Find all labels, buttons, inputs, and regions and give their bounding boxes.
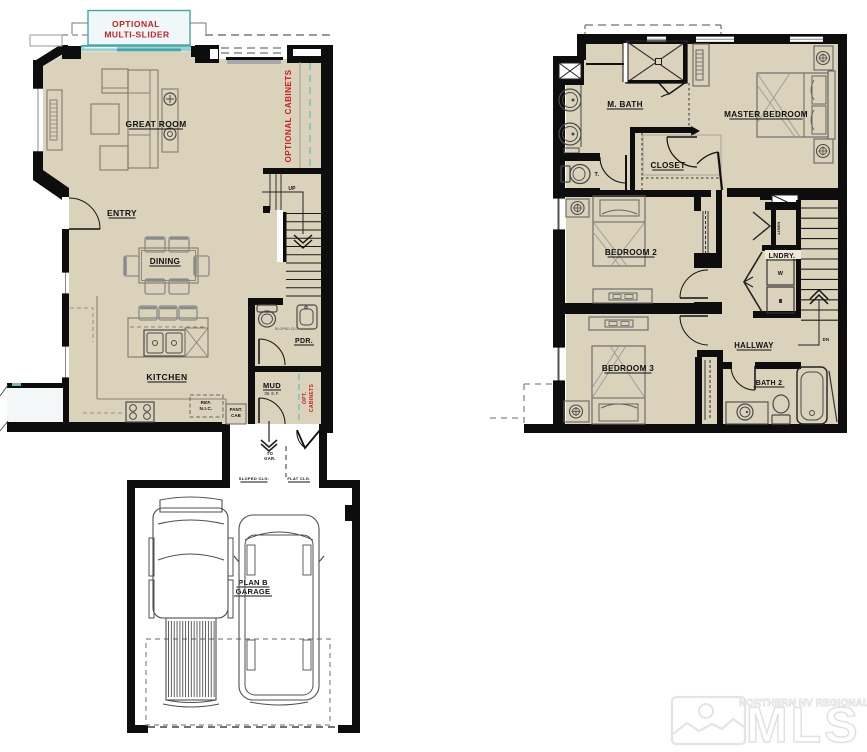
svg-text:ENTRY: ENTRY bbox=[107, 208, 137, 218]
svg-text:T.: T. bbox=[595, 172, 600, 178]
svg-text:CAB: CAB bbox=[231, 413, 241, 418]
svg-text:CABINETS: CABINETS bbox=[309, 384, 315, 412]
svg-text:35 S.F.: 35 S.F. bbox=[264, 391, 279, 396]
svg-text:SLOPED CLG.: SLOPED CLG. bbox=[275, 327, 299, 331]
svg-text:DINING: DINING bbox=[150, 257, 180, 266]
svg-text:BEDROOM 2: BEDROOM 2 bbox=[605, 248, 657, 257]
svg-text:UP: UP bbox=[288, 186, 296, 192]
svg-text:PDR.: PDR. bbox=[295, 338, 313, 345]
svg-text:KITCHEN: KITCHEN bbox=[146, 372, 187, 382]
svg-text:BEDROOM 3: BEDROOM 3 bbox=[602, 364, 654, 373]
svg-text:OPT.: OPT. bbox=[302, 391, 308, 404]
svg-text:GAR.: GAR. bbox=[264, 456, 276, 461]
svg-text:LNDRY.: LNDRY. bbox=[769, 253, 796, 260]
svg-text:OPTIONAL: OPTIONAL bbox=[112, 19, 160, 29]
svg-text:N.I.C.: N.I.C. bbox=[200, 406, 213, 411]
svg-text:MUD: MUD bbox=[263, 381, 281, 390]
svg-text:PANT.: PANT. bbox=[230, 407, 243, 412]
svg-text:SLOPED CLG.: SLOPED CLG. bbox=[239, 476, 269, 481]
svg-text:MULTI-SLIDER: MULTI-SLIDER bbox=[104, 30, 169, 40]
svg-text:REF.: REF. bbox=[201, 400, 212, 405]
svg-text:GREAT ROOM: GREAT ROOM bbox=[126, 119, 187, 129]
svg-text:HALLWAY: HALLWAY bbox=[734, 341, 774, 350]
svg-text:MLS: MLS bbox=[746, 697, 861, 752]
svg-text:FLAT CLG.: FLAT CLG. bbox=[287, 476, 310, 481]
svg-text:GARAGE: GARAGE bbox=[236, 587, 271, 596]
svg-text:W: W bbox=[778, 271, 784, 277]
svg-text:LINEN: LINEN bbox=[776, 222, 781, 235]
svg-text:M. BATH: M. BATH bbox=[607, 100, 643, 109]
svg-text:DN: DN bbox=[823, 337, 830, 342]
svg-text:OPTIONAL CABINETS: OPTIONAL CABINETS bbox=[284, 69, 293, 162]
svg-text:PLAN B: PLAN B bbox=[238, 578, 268, 587]
svg-text:MASTER BEDROOM: MASTER BEDROOM bbox=[724, 110, 808, 119]
svg-text:BATH 2: BATH 2 bbox=[756, 380, 783, 387]
